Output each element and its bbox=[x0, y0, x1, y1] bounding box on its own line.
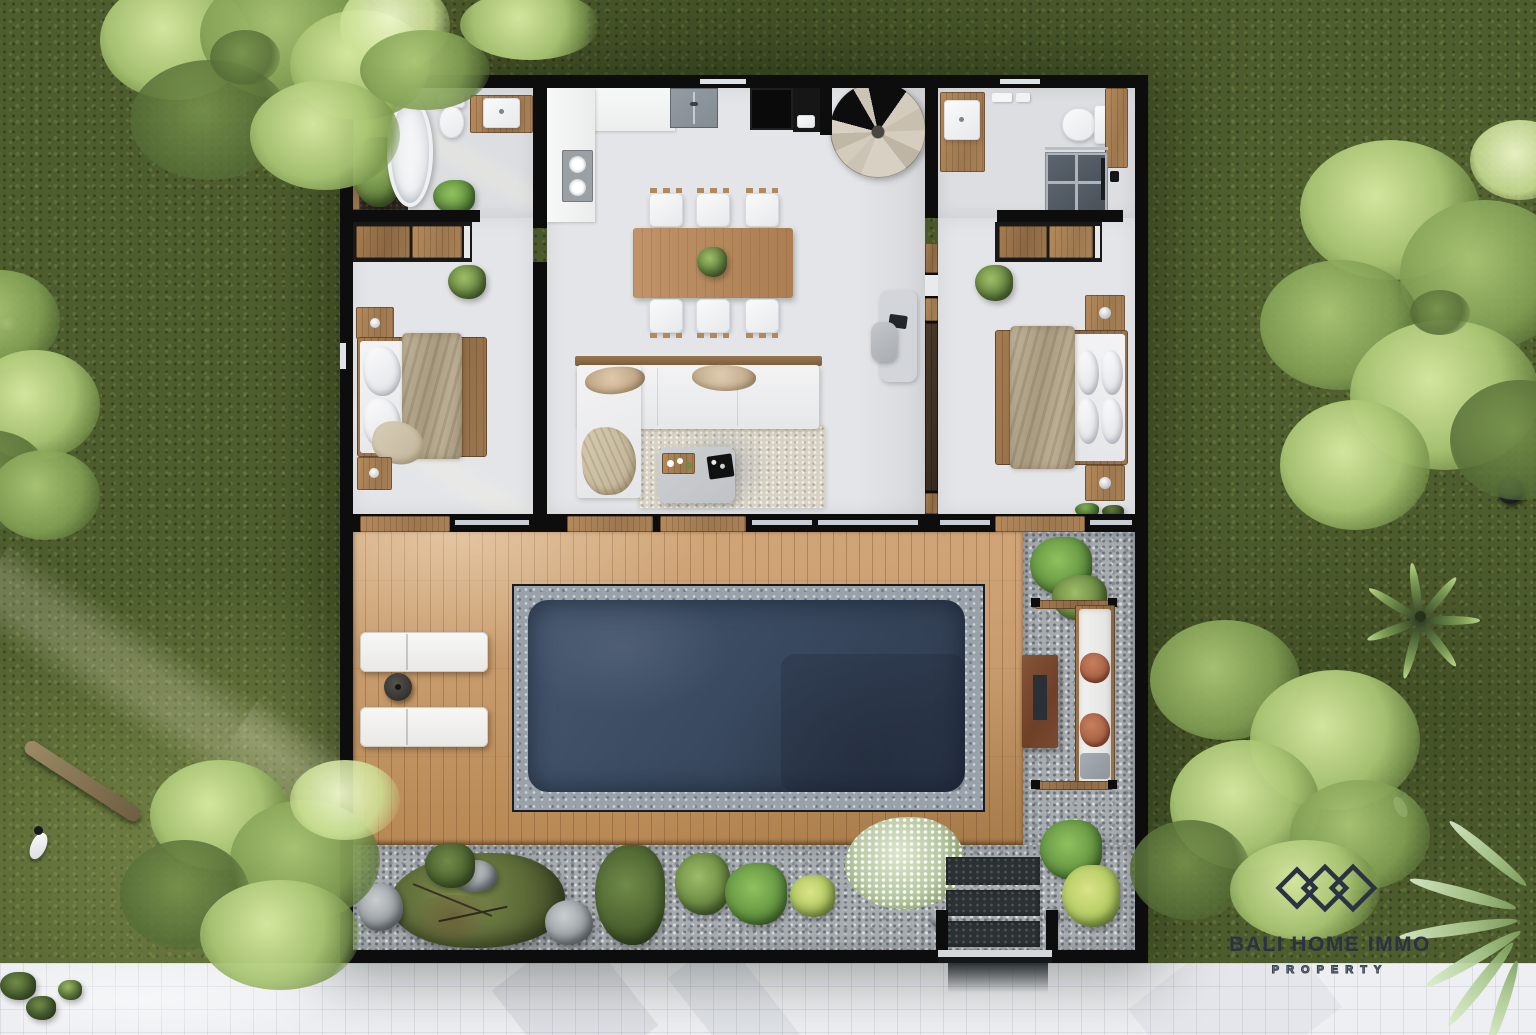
wall-shelf bbox=[925, 493, 938, 514]
table-center bbox=[395, 684, 401, 690]
table-inset bbox=[1033, 675, 1047, 720]
garden-bush bbox=[725, 863, 787, 925]
wall-cabinet bbox=[925, 323, 938, 491]
faucet bbox=[690, 102, 698, 106]
tray-item bbox=[720, 463, 726, 469]
brand-watermark: BALI HOME IMMO PROPERTY bbox=[1205, 858, 1455, 976]
cup bbox=[667, 460, 674, 467]
towel bbox=[1016, 93, 1030, 102]
table-centerpiece bbox=[697, 247, 727, 277]
entrance-threshold-shadow bbox=[938, 957, 1052, 963]
sun-lounger bbox=[360, 632, 488, 672]
bed-blanket bbox=[1010, 326, 1075, 469]
pillow bbox=[1077, 398, 1099, 444]
cup bbox=[677, 458, 683, 464]
walkway-leaves bbox=[58, 980, 82, 1000]
shower-glass bbox=[1045, 147, 1108, 150]
garden-bush bbox=[675, 853, 730, 915]
dining-chair bbox=[745, 193, 779, 227]
sliding-door-glass bbox=[818, 520, 918, 525]
tall-cabinet bbox=[793, 88, 820, 132]
planter-corner bbox=[1031, 598, 1040, 607]
wall-bottom bbox=[340, 950, 938, 963]
wall-bottom bbox=[1052, 950, 1148, 963]
sliding-door-glass bbox=[940, 520, 990, 525]
step-side-wall bbox=[936, 910, 948, 950]
door-threshold bbox=[360, 516, 450, 532]
sliding-door-glass bbox=[455, 520, 529, 525]
wardrobe bbox=[995, 222, 1102, 262]
window-slit bbox=[700, 79, 746, 84]
vase bbox=[1099, 307, 1111, 319]
tree-canopy bbox=[40, 0, 600, 280]
dining-chair bbox=[696, 299, 730, 333]
tree-canopy bbox=[0, 270, 140, 560]
sprig bbox=[685, 462, 692, 469]
planter-corner bbox=[1031, 780, 1040, 789]
desk-chair bbox=[871, 322, 897, 362]
entrance-threshold bbox=[938, 950, 1052, 957]
coffee-table bbox=[658, 447, 735, 503]
chair-armrest bbox=[697, 188, 729, 193]
toilet-bowl bbox=[1062, 108, 1096, 141]
chair-armrest bbox=[746, 333, 778, 338]
wall-interior bbox=[925, 88, 938, 218]
vanity-sink bbox=[944, 100, 980, 140]
brand-name: BALI HOME IMMO bbox=[1205, 933, 1455, 957]
faucet bbox=[959, 117, 964, 122]
walkway-leaves bbox=[0, 972, 36, 1000]
shower-tray bbox=[1045, 152, 1108, 212]
daybed-throw bbox=[1080, 753, 1110, 779]
wall-stub bbox=[820, 88, 832, 135]
bedroom-plant bbox=[975, 265, 1013, 301]
wardrobe-door bbox=[1049, 226, 1093, 258]
tree-canopy bbox=[1220, 120, 1536, 550]
pool-shadow bbox=[781, 654, 965, 792]
vase bbox=[370, 318, 380, 328]
towel bbox=[992, 93, 1012, 102]
pillow bbox=[1077, 350, 1099, 395]
swimming-pool bbox=[528, 600, 965, 792]
wardrobe-door bbox=[999, 226, 1047, 258]
door-threshold bbox=[660, 516, 746, 532]
dining-table bbox=[633, 228, 793, 298]
cushion-seam bbox=[657, 368, 658, 426]
pillow bbox=[1101, 350, 1123, 395]
entrance-step bbox=[946, 921, 1040, 947]
nightstand bbox=[356, 307, 394, 339]
dining-chair bbox=[696, 193, 730, 227]
chair-armrest bbox=[650, 188, 682, 193]
wall-bathroom bbox=[997, 210, 1123, 222]
bathroom-wood-panel bbox=[1105, 88, 1128, 168]
aerial-villa-render: BALI HOME IMMO PROPERTY bbox=[0, 0, 1536, 1035]
sliding-door-glass bbox=[752, 520, 812, 525]
vase bbox=[1099, 477, 1111, 489]
nightstand bbox=[1085, 465, 1125, 501]
sink-divider bbox=[693, 92, 695, 124]
refrigerator bbox=[750, 88, 793, 130]
shower-tile bbox=[1048, 155, 1075, 181]
vase bbox=[369, 468, 379, 478]
pillow bbox=[363, 346, 401, 396]
chair-armrest bbox=[697, 333, 729, 338]
tree-canopy bbox=[90, 740, 410, 1030]
deck-side-table bbox=[384, 673, 412, 701]
walkway-leaves bbox=[26, 996, 56, 1020]
wall-fixture bbox=[1110, 171, 1119, 182]
palm-plant bbox=[1355, 555, 1485, 685]
pillow bbox=[1101, 398, 1123, 444]
person bbox=[28, 826, 50, 862]
window-slit bbox=[340, 343, 346, 369]
paving-shadow bbox=[667, 963, 802, 1035]
lounger-fold bbox=[406, 634, 408, 670]
entrance-step bbox=[946, 857, 1040, 885]
entrance-step bbox=[946, 890, 1040, 916]
wardrobe-gap bbox=[1095, 226, 1100, 258]
shower-tile bbox=[1048, 184, 1075, 210]
black-tray bbox=[707, 453, 735, 479]
window-slit bbox=[1000, 79, 1040, 84]
brand-tagline: PROPERTY bbox=[1205, 964, 1455, 976]
three-diamonds-icon bbox=[1260, 858, 1400, 918]
wall-shelf bbox=[925, 298, 938, 321]
chair-armrest bbox=[746, 188, 778, 193]
serving-tray bbox=[662, 453, 695, 474]
entry-path bbox=[948, 963, 1048, 993]
pool-coping bbox=[512, 584, 985, 812]
spiral-staircase bbox=[830, 82, 926, 178]
nightstand bbox=[1085, 295, 1125, 331]
dining-chair bbox=[649, 299, 683, 333]
garden-bush bbox=[425, 843, 475, 888]
wall-shelf bbox=[925, 275, 938, 296]
sliding-door-glass bbox=[1090, 520, 1132, 525]
garden-rock bbox=[545, 900, 593, 945]
garden-bush bbox=[790, 875, 835, 917]
door-threshold bbox=[567, 516, 653, 532]
wall-shelf bbox=[925, 243, 938, 273]
chair-armrest bbox=[650, 333, 682, 338]
dining-chair bbox=[745, 299, 779, 333]
door-threshold bbox=[995, 516, 1085, 532]
planter-border bbox=[1035, 781, 1113, 790]
palm-center bbox=[1415, 611, 1426, 622]
dining-chair bbox=[649, 193, 683, 227]
nightstand bbox=[357, 457, 392, 490]
poolside-table bbox=[1022, 655, 1058, 748]
prep-sink bbox=[797, 115, 815, 128]
shower-fixture bbox=[1101, 158, 1105, 200]
paving-shadow bbox=[492, 963, 659, 1035]
wall-interior bbox=[533, 262, 547, 514]
step-side-wall bbox=[1046, 910, 1058, 950]
tray-item bbox=[711, 460, 717, 466]
garden-bush bbox=[595, 845, 665, 945]
kitchen-sink-unit bbox=[670, 88, 718, 128]
